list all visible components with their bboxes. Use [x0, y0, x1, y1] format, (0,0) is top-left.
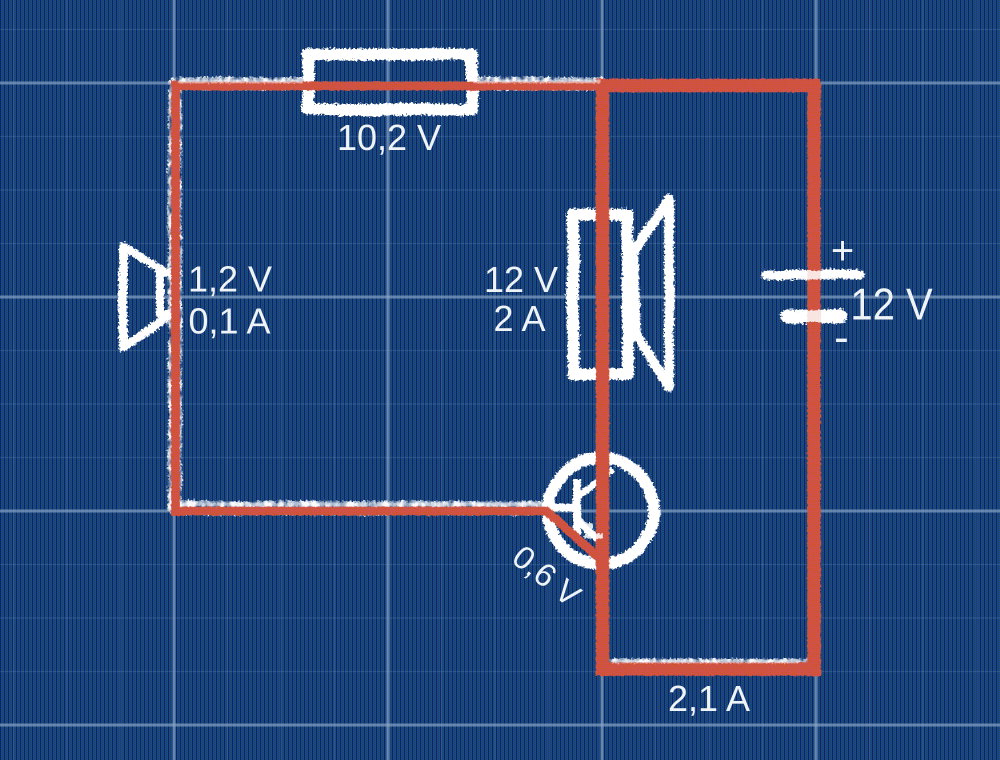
svg-text:2,1 A: 2,1 A — [668, 678, 750, 719]
svg-text:12 V: 12 V — [850, 280, 933, 329]
svg-text:1,2 V: 1,2 V — [188, 259, 272, 300]
svg-text:12 V: 12 V — [484, 259, 558, 300]
svg-text:2 A: 2 A — [493, 298, 545, 339]
svg-text:0,1 A: 0,1 A — [188, 301, 270, 342]
svg-text:+: + — [831, 229, 854, 273]
svg-text:-: - — [834, 313, 849, 362]
svg-text:10,2 V: 10,2 V — [337, 117, 441, 158]
